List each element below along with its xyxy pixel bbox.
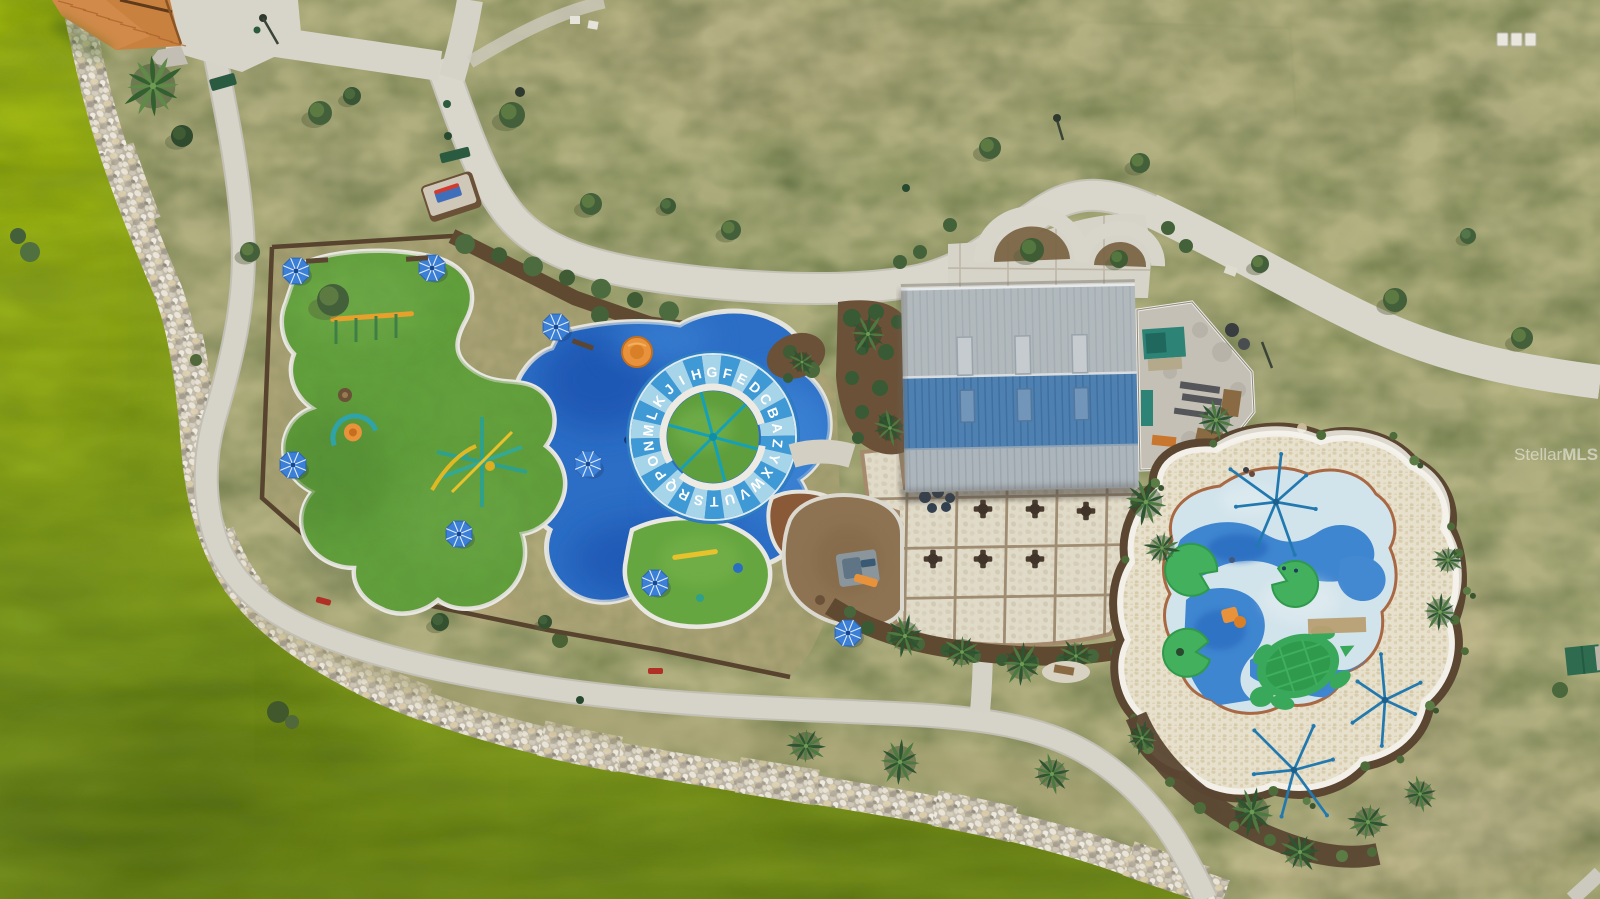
svg-text:T: T: [709, 494, 718, 510]
svg-text:M: M: [640, 424, 657, 437]
svg-text:G: G: [706, 364, 717, 380]
svg-text:StellarMLS: StellarMLS: [1514, 445, 1598, 464]
